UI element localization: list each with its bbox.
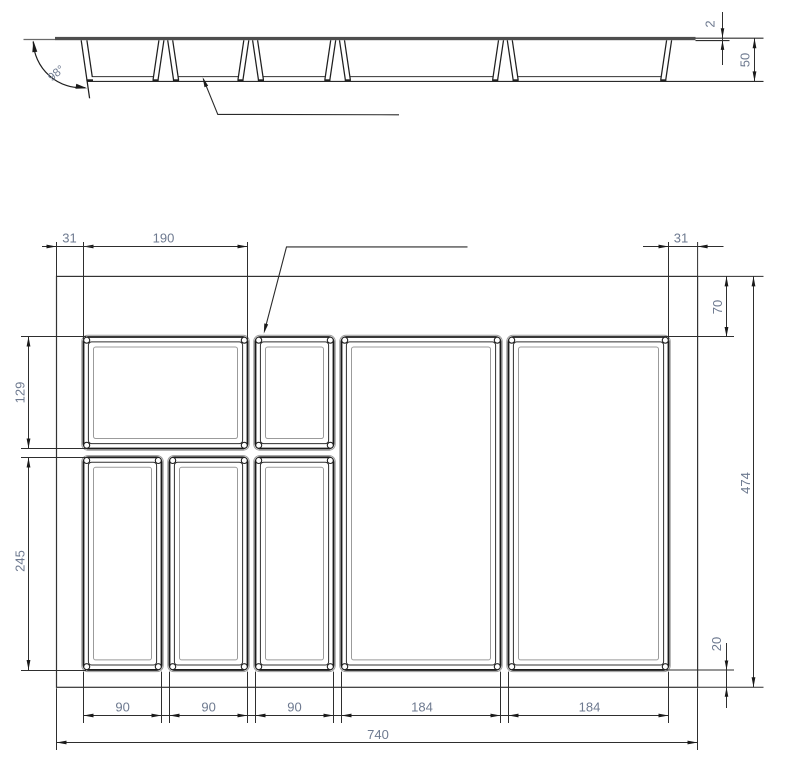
svg-text:70: 70 bbox=[710, 300, 725, 314]
svg-text:90: 90 bbox=[201, 699, 215, 714]
svg-text:474: 474 bbox=[738, 472, 753, 494]
svg-text:90: 90 bbox=[115, 699, 129, 714]
svg-text:90: 90 bbox=[287, 699, 301, 714]
svg-text:184: 184 bbox=[579, 699, 601, 714]
svg-text:129: 129 bbox=[12, 382, 27, 404]
svg-text:245: 245 bbox=[12, 550, 27, 572]
svg-text:740: 740 bbox=[367, 727, 389, 742]
svg-text:184: 184 bbox=[411, 699, 433, 714]
svg-text:50: 50 bbox=[738, 53, 753, 67]
svg-text:2: 2 bbox=[703, 20, 718, 27]
svg-text:190: 190 bbox=[153, 230, 175, 245]
svg-text:31: 31 bbox=[674, 230, 688, 245]
svg-text:31: 31 bbox=[62, 230, 76, 245]
svg-text:20: 20 bbox=[709, 637, 724, 651]
